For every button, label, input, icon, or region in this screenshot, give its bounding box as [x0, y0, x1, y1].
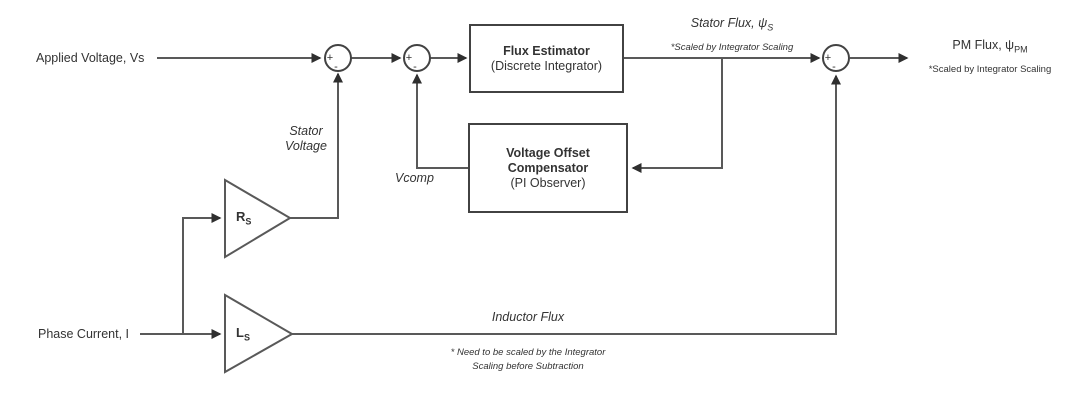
- stator-flux-label: Stator Flux, ψS *Scaled by Integrator Sc…: [648, 16, 816, 54]
- inductor-flux-label: Inductor Flux: [440, 310, 616, 324]
- flux-estimator-block-label: Flux Estimator (Discrete Integrator): [470, 25, 623, 92]
- stator-flux-note: *Scaled by Integrator Scaling: [648, 42, 816, 54]
- junction2-minus-sign: -: [413, 61, 417, 73]
- rs-gain-symbol: R: [236, 209, 245, 224]
- pm-flux-title: PM Flux, ψPM: [906, 38, 1074, 58]
- pm-flux-subscript: PM: [1014, 45, 1028, 55]
- ls-gain-symbol: L: [236, 325, 244, 340]
- compensator-title-line2: Compensator: [508, 161, 589, 176]
- voltage-offset-compensator-block-label: Voltage Offset Compensator (PI Observer): [469, 124, 627, 212]
- rs-gain-label: RS: [236, 209, 251, 227]
- stator-flux-subscript: S: [767, 23, 773, 33]
- flux-estimator-subtitle: (Discrete Integrator): [491, 59, 602, 74]
- rs-gain-triangle: [225, 180, 290, 257]
- compensator-title-line1: Voltage Offset: [506, 146, 590, 161]
- ls-gain-label: LS: [236, 325, 250, 343]
- phase-current-to-rs-branch-wire: [183, 218, 220, 334]
- stator-voltage-line1: Stator: [266, 124, 346, 139]
- vcomp-label: Vcomp: [395, 171, 434, 185]
- stator-flux-feedback-wire: [633, 58, 722, 168]
- junction3-plus-sign: +: [825, 52, 831, 64]
- rs-gain-subscript: S: [245, 217, 251, 227]
- junction1-plus-sign: +: [327, 52, 333, 64]
- integrator-scaling-footnote: * Need to be scaled by the Integrator Sc…: [420, 346, 636, 374]
- block-diagram: + - + - + - Applied Voltage, Vs Phase Cu…: [0, 0, 1080, 420]
- applied-voltage-label: Applied Voltage, Vs: [36, 51, 144, 65]
- pm-flux-label: PM Flux, ψPM *Scaled by Integrator Scali…: [906, 38, 1074, 76]
- footnote-line2: Scaling before Subtraction: [420, 360, 636, 374]
- junction1-minus-sign: -: [334, 61, 338, 73]
- stator-voltage-label: Stator Voltage: [266, 124, 346, 154]
- pm-flux-note: *Scaled by Integrator Scaling: [906, 64, 1074, 76]
- flux-estimator-title: Flux Estimator: [503, 44, 590, 59]
- compensator-subtitle: (PI Observer): [510, 176, 585, 191]
- stator-voltage-line2: Voltage: [266, 139, 346, 154]
- footnote-line1: * Need to be scaled by the Integrator: [420, 346, 636, 360]
- junction2-plus-sign: +: [406, 52, 412, 64]
- ls-gain-subscript: S: [244, 333, 250, 343]
- stator-flux-title: Stator Flux, ψS: [648, 16, 816, 36]
- junction3-minus-sign: -: [832, 61, 836, 73]
- phase-current-label: Phase Current, I: [38, 327, 129, 341]
- vcomp-wire: [417, 75, 469, 168]
